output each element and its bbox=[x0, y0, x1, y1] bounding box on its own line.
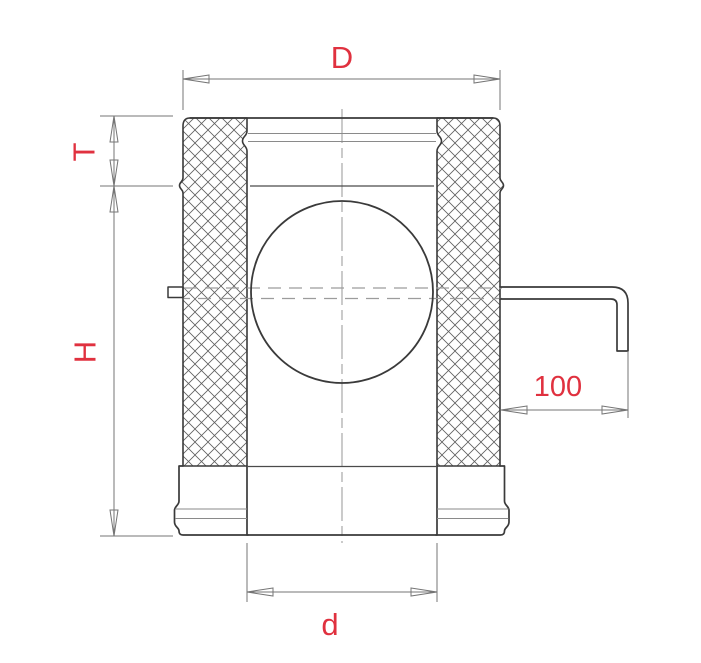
dimension-d-label: d bbox=[321, 607, 338, 642]
band-handle-right bbox=[500, 287, 628, 351]
dimension-100: 100 bbox=[501, 351, 628, 418]
dimension-d: d bbox=[247, 543, 437, 642]
drawing-canvas: D T H 100 d bbox=[0, 0, 701, 663]
dimension-D-label: D bbox=[331, 40, 353, 75]
insulation-wall-left bbox=[180, 118, 248, 466]
dimension-100-label: 100 bbox=[534, 371, 582, 403]
dimension-H: H bbox=[68, 186, 174, 536]
band-tab-left bbox=[168, 287, 183, 298]
technical-drawing: D T H 100 d bbox=[0, 0, 701, 663]
bottom-collar-left bbox=[175, 466, 249, 535]
insulation-wall-right bbox=[437, 118, 504, 466]
dimension-D: D bbox=[183, 40, 500, 110]
bottom-collar-right bbox=[436, 466, 509, 535]
dimension-T-label: T bbox=[67, 142, 102, 161]
dimension-T: T bbox=[67, 116, 174, 186]
dimension-H-label: H bbox=[68, 341, 103, 363]
